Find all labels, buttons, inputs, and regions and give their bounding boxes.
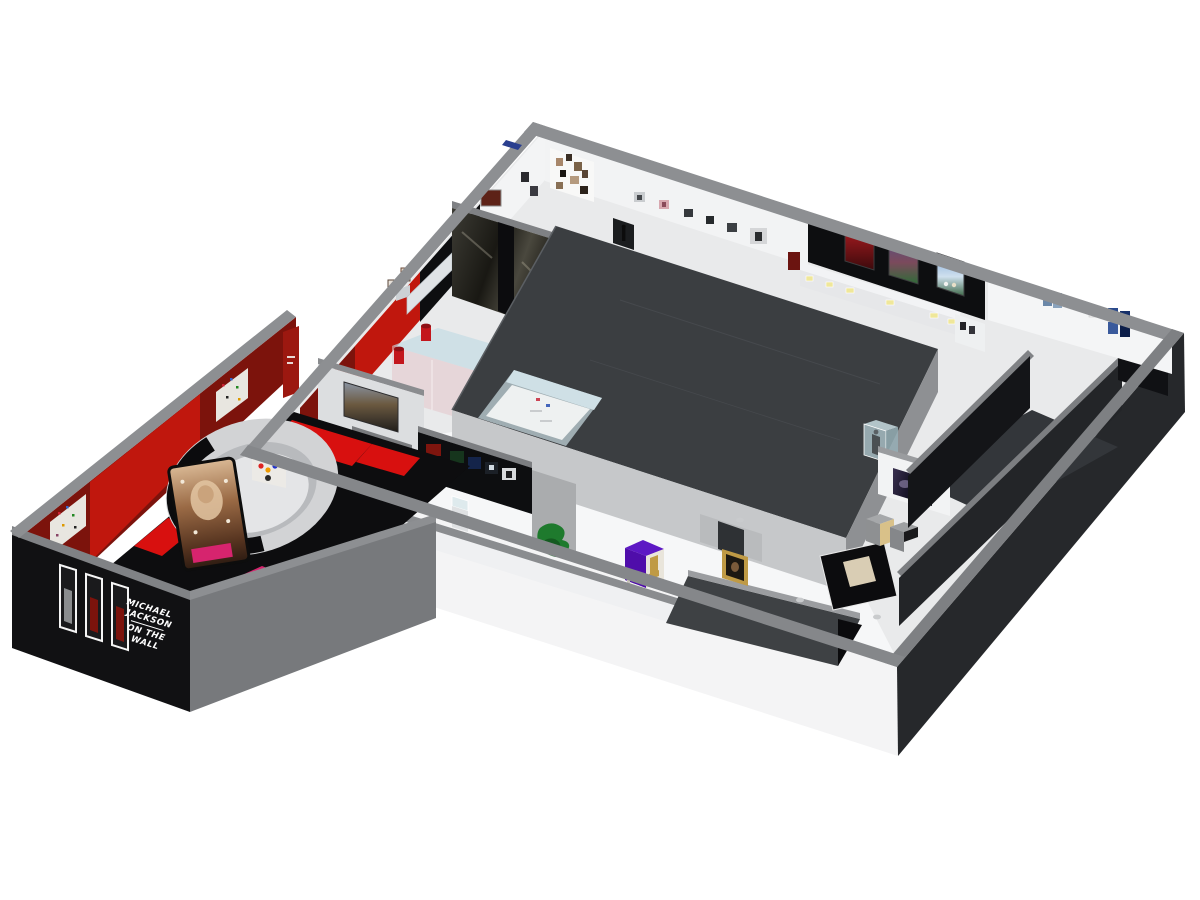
yellow-book [930,313,938,318]
floor-spotlight-dot [796,598,804,603]
figure-statue [622,228,625,241]
red-wall-text-mark [287,362,293,364]
figure-head [874,430,879,435]
mj-collage-portrait [168,457,249,570]
artwork-figure-dot [952,283,956,287]
figure-statue-head [622,225,626,229]
floor-spotlight-dot [736,518,744,523]
artwork-figure-dot [944,282,948,286]
yellow-book [806,276,813,281]
canvas-figure [731,562,739,572]
blue-artwork [468,457,481,469]
entrance-door-slit [86,574,102,641]
yellow-book [826,282,833,287]
yellow-book [886,300,894,305]
small-frame-artwork [521,172,529,182]
entrance-door-slit [60,565,76,632]
museum-floorplan-render: MICHAEL JACKSON ON THE WALL [0,0,1200,900]
red-cylinder-exhibit [394,347,404,364]
bw-artwork [502,468,516,480]
small-frame-artwork [530,186,538,196]
yellow-book [846,288,854,293]
red-wall-text-mark [287,356,295,358]
yellow-book [948,319,955,324]
floor-spotlight-dot [873,615,881,620]
red-cylinder-exhibit [421,324,431,341]
dark-red-small-artwork [788,252,800,270]
icy-artwork [485,462,498,474]
floorplan-3d-scene: MICHAEL JACKSON ON THE WALL [0,0,1200,900]
